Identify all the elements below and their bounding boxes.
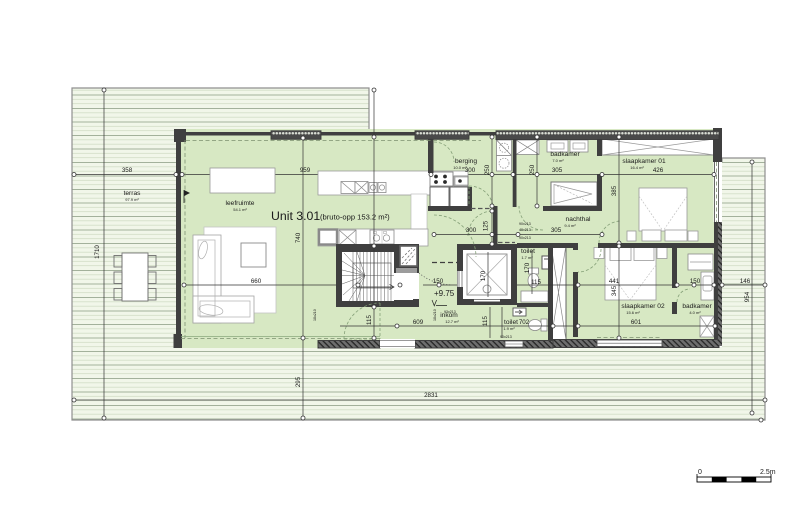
svg-text:97.9 m²: 97.9 m² (125, 197, 139, 202)
svg-text:2.5m: 2.5m (760, 469, 776, 476)
svg-text:0: 0 (698, 469, 702, 476)
svg-text:300: 300 (466, 227, 477, 234)
svg-text:slaapkamer 02: slaapkamer 02 (621, 303, 665, 310)
svg-text:40x213: 40x213 (519, 228, 531, 232)
svg-text:702: 702 (519, 319, 530, 326)
svg-text:125: 125 (483, 220, 490, 231)
svg-text:berging: berging (455, 158, 477, 165)
svg-text:18x210: 18x210 (433, 309, 437, 321)
svg-text:nachthal: nachthal (566, 216, 591, 223)
svg-text:385: 385 (611, 185, 618, 196)
svg-text:740: 740 (295, 232, 302, 243)
svg-text:slaapkamer 01: slaapkamer 01 (622, 158, 666, 165)
svg-text:2831: 2831 (424, 392, 438, 399)
svg-text:toilet: toilet (504, 319, 518, 326)
svg-text:426: 426 (653, 167, 664, 174)
svg-text:954: 954 (744, 291, 751, 302)
svg-text:345: 345 (611, 285, 618, 296)
svg-text:1710: 1710 (94, 245, 101, 259)
svg-text:305: 305 (552, 167, 563, 174)
svg-text:115: 115 (366, 315, 373, 325)
svg-text:90x213: 90x213 (500, 335, 512, 339)
svg-text:146: 146 (740, 278, 751, 285)
svg-text:7.0 m²: 7.0 m² (552, 158, 564, 163)
svg-text:305: 305 (551, 227, 562, 234)
svg-text:959: 959 (300, 167, 311, 174)
svg-text:terras: terras (124, 190, 142, 197)
svg-text:12.7 m²: 12.7 m² (445, 319, 459, 324)
svg-text:9.4 m²: 9.4 m² (564, 223, 576, 228)
svg-text:badkamer: badkamer (550, 151, 580, 158)
svg-text:250: 250 (484, 164, 491, 175)
svg-text:90x213: 90x213 (519, 222, 531, 226)
svg-text:10.0 m²: 10.0 m² (453, 165, 467, 170)
svg-text:170: 170 (524, 262, 531, 273)
svg-text:+9.75: +9.75 (434, 289, 455, 298)
svg-text:150: 150 (433, 278, 444, 285)
svg-text:90x213: 90x213 (519, 236, 531, 240)
svg-text:18x210: 18x210 (313, 309, 317, 321)
svg-text:1.7 m²: 1.7 m² (521, 255, 533, 260)
svg-text:1.9 m²: 1.9 m² (503, 326, 515, 331)
svg-text:115: 115 (482, 316, 489, 326)
svg-text:Unit 3.01: Unit 3.01 (271, 209, 320, 223)
svg-text:601: 601 (631, 319, 642, 326)
svg-text:badkamer: badkamer (682, 303, 712, 310)
svg-text:170: 170 (480, 270, 487, 281)
svg-text:toilet: toilet (521, 248, 535, 255)
svg-text:leefruimte: leefruimte (226, 200, 255, 207)
svg-text:358: 358 (122, 167, 133, 174)
svg-text:16.4 m²: 16.4 m² (630, 165, 644, 170)
svg-text:54.1 m²: 54.1 m² (233, 207, 247, 212)
svg-text:15.6 m²: 15.6 m² (626, 310, 640, 315)
svg-text:609: 609 (413, 319, 424, 326)
svg-text:4.0 m²: 4.0 m² (689, 310, 701, 315)
svg-text:(bruto-opp 153.2 m²): (bruto-opp 153.2 m²) (320, 213, 390, 222)
svg-text:441: 441 (609, 278, 620, 285)
svg-text:93x213: 93x213 (444, 310, 456, 314)
svg-text:250: 250 (529, 164, 536, 175)
svg-text:150: 150 (690, 278, 701, 285)
svg-text:660: 660 (251, 278, 262, 285)
svg-text:115: 115 (531, 279, 541, 286)
svg-text:295: 295 (295, 376, 302, 387)
